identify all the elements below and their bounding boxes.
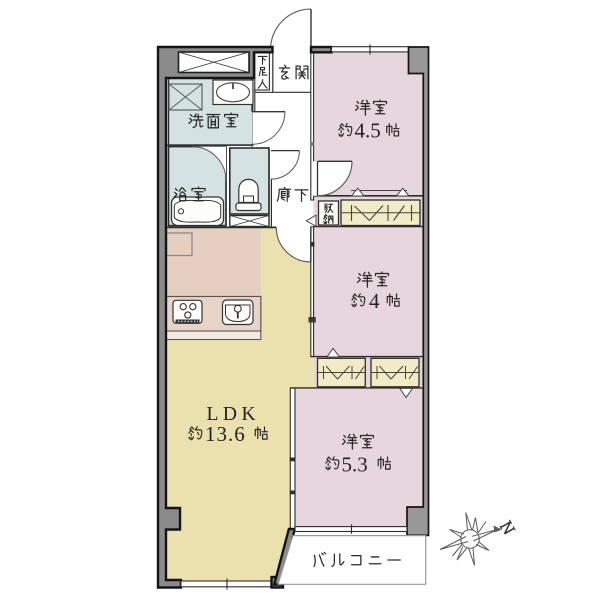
svg-text:4: 4: [369, 289, 380, 313]
svg-text:4.5: 4.5: [355, 119, 381, 143]
svg-text:5.3: 5.3: [342, 452, 368, 476]
svg-text:13.6: 13.6: [205, 422, 246, 446]
